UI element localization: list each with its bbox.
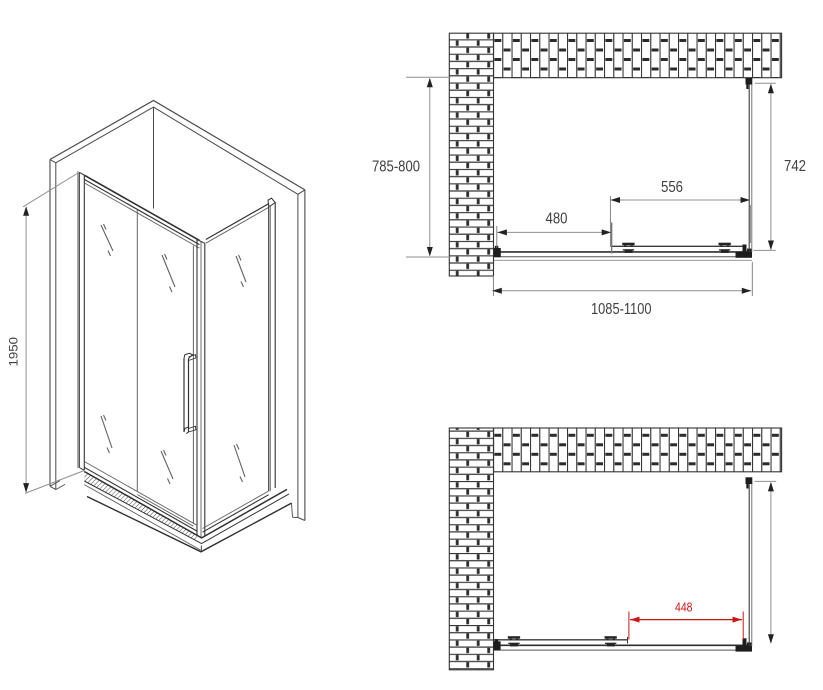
svg-text:742: 742 (784, 158, 806, 175)
svg-text:1085-1100: 1085-1100 (591, 301, 652, 318)
svg-text:556: 556 (661, 179, 683, 196)
svg-text:480: 480 (546, 211, 568, 228)
svg-text:448: 448 (675, 599, 693, 614)
svg-text:1950: 1950 (7, 337, 21, 367)
svg-text:785-800: 785-800 (372, 159, 420, 176)
